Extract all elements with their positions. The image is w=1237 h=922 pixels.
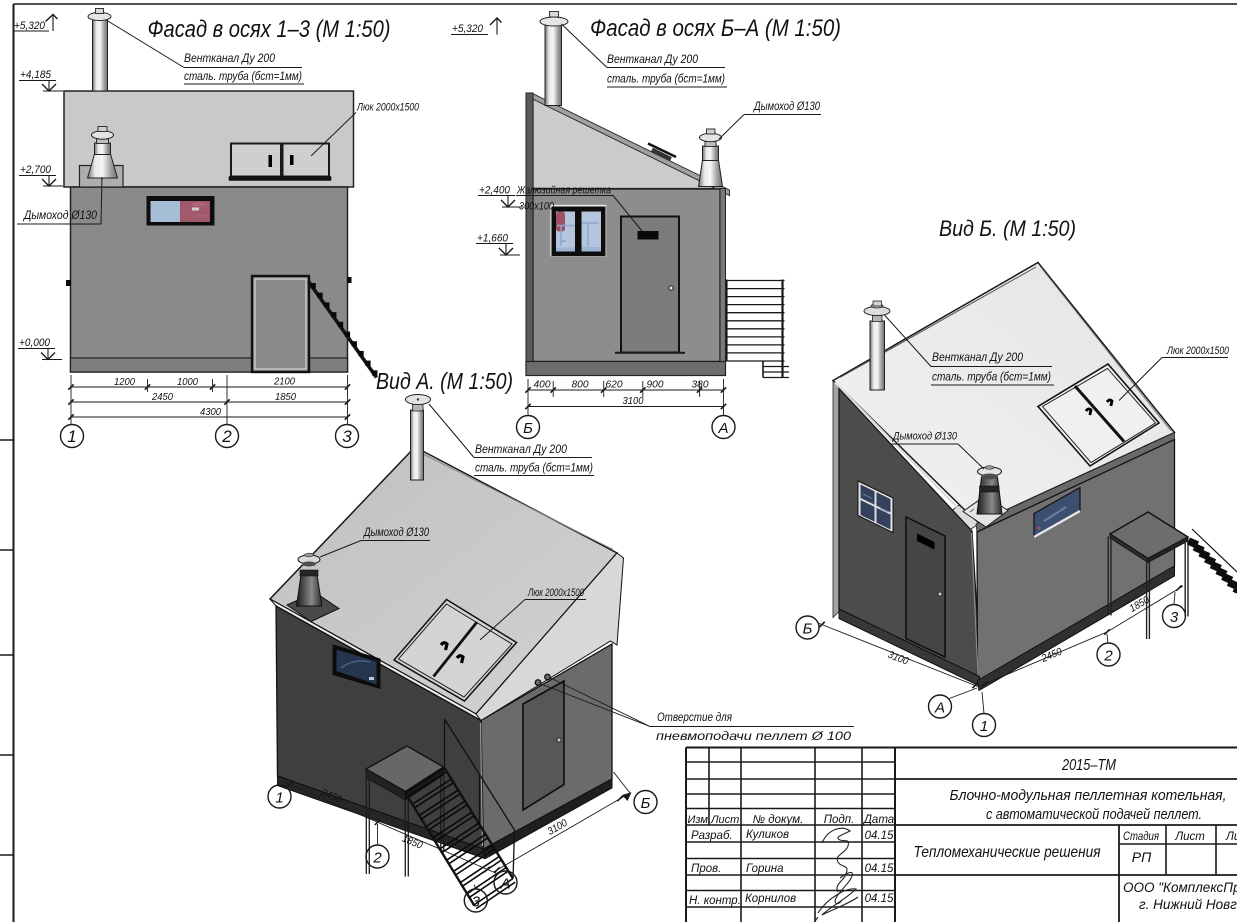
svg-text:Подп.: Подп. xyxy=(824,814,855,826)
svg-text:Лист: Лист xyxy=(710,814,739,826)
svg-text:Вентканал Ду 200: Вентканал Ду 200 xyxy=(475,444,568,456)
svg-text:Вид Б. (М 1:50): Вид Б. (М 1:50) xyxy=(939,216,1076,241)
svg-text:Изм.: Изм. xyxy=(688,814,711,826)
svg-text:1: 1 xyxy=(67,427,76,446)
svg-text:2100: 2100 xyxy=(273,376,295,388)
svg-text:4300: 4300 xyxy=(200,406,221,418)
svg-text:пневмоподачи пеллет Ø 100: пневмоподачи пеллет Ø 100 xyxy=(656,731,852,743)
svg-text:1200: 1200 xyxy=(114,376,135,388)
svg-text:РП: РП xyxy=(1132,849,1152,865)
svg-text:Люк 2000х1500: Люк 2000х1500 xyxy=(1166,345,1229,357)
svg-text:2: 2 xyxy=(1103,648,1113,665)
svg-text:04.15: 04.15 xyxy=(865,863,894,875)
svg-text:1850: 1850 xyxy=(275,391,296,403)
svg-text:04.15: 04.15 xyxy=(865,893,894,905)
svg-text:Дымоход Ø130: Дымоход Ø130 xyxy=(752,101,820,113)
svg-text:380: 380 xyxy=(692,379,709,391)
svg-text:3: 3 xyxy=(1170,609,1179,626)
svg-text:Люк 2000х1500: Люк 2000х1500 xyxy=(527,587,584,599)
svg-text:Фасад в осях 1–3 (М 1:50): Фасад в осях 1–3 (М 1:50) xyxy=(148,16,391,43)
svg-text:Жалюзийная решетка: Жалюзийная решетка xyxy=(516,185,611,197)
svg-text:Н. контр.: Н. контр. xyxy=(689,895,741,907)
svg-text:Люк 2000х1500: Люк 2000х1500 xyxy=(356,102,419,114)
svg-text:сталь. труба (бст=1мм): сталь. труба (бст=1мм) xyxy=(607,74,725,86)
svg-text:Лист: Лист xyxy=(1174,831,1205,843)
svg-text:сталь. труба (бст=1мм): сталь. труба (бст=1мм) xyxy=(932,372,1051,384)
svg-text:Дымоход Ø130: Дымоход Ø130 xyxy=(891,431,957,443)
svg-text:Горина: Горина xyxy=(746,863,784,875)
svg-text:2: 2 xyxy=(221,427,232,446)
svg-text:Пров.: Пров. xyxy=(691,863,721,875)
svg-text:300х100: 300х100 xyxy=(519,201,555,213)
svg-text:400: 400 xyxy=(534,379,551,391)
svg-text:ООО "КомплексПроект": ООО "КомплексПроект" xyxy=(1123,880,1237,895)
svg-text:1: 1 xyxy=(275,790,283,807)
svg-text:Б: Б xyxy=(641,795,651,812)
svg-text:900: 900 xyxy=(647,379,664,391)
svg-text:3100: 3100 xyxy=(623,395,644,407)
svg-text:Отверстие для: Отверстие для xyxy=(657,712,732,724)
svg-text:№ докум.: № докум. xyxy=(753,814,804,826)
svg-text:сталь. труба (бст=1мм): сталь. труба (бст=1мм) xyxy=(184,71,302,83)
svg-text:+5,320: +5,320 xyxy=(452,23,484,35)
svg-text:Куликов: Куликов xyxy=(746,829,789,841)
svg-text:1000: 1000 xyxy=(177,376,198,388)
svg-text:2: 2 xyxy=(372,850,382,867)
svg-text:Фасад в осях Б–А (М 1:50): Фасад в осях Б–А (М 1:50) xyxy=(590,15,841,42)
svg-text:800: 800 xyxy=(572,379,589,391)
svg-text:620: 620 xyxy=(606,379,623,391)
svg-text:Разраб.: Разраб. xyxy=(691,830,733,842)
svg-text:г. Нижний Новгород: г. Нижний Новгород xyxy=(1139,897,1237,912)
svg-text:Дымоход Ø130: Дымоход Ø130 xyxy=(362,527,429,539)
svg-text:Вентканал Ду 200: Вентканал Ду 200 xyxy=(607,54,699,66)
svg-text:04.15: 04.15 xyxy=(865,830,894,842)
svg-text:Стадия: Стадия xyxy=(1123,831,1159,843)
svg-text:2015–ТМ: 2015–ТМ xyxy=(1061,757,1116,774)
svg-text:Дымоход Ø130: Дымоход Ø130 xyxy=(22,210,97,222)
svg-text:Вентканал Ду 200: Вентканал Ду 200 xyxy=(932,352,1024,364)
svg-text:+2,700: +2,700 xyxy=(20,164,52,176)
svg-text:+4,185: +4,185 xyxy=(20,69,52,81)
svg-text:Корнилов: Корнилов xyxy=(745,893,796,905)
svg-text:1: 1 xyxy=(980,718,988,735)
svg-text:Б: Б xyxy=(523,420,533,437)
svg-text:А: А xyxy=(717,420,728,437)
svg-text:Дата: Дата xyxy=(862,814,894,826)
svg-text:с автоматической подачей пелле: с автоматической подачей пеллет. xyxy=(986,806,1202,823)
svg-text:+5,320: +5,320 xyxy=(14,20,46,32)
svg-text:+1,660: +1,660 xyxy=(477,233,509,245)
svg-text:3: 3 xyxy=(472,894,481,911)
svg-text:Листов: Листов xyxy=(1225,831,1237,843)
svg-text:сталь. труба (бст=1мм): сталь. труба (бст=1мм) xyxy=(475,463,593,475)
svg-text:3: 3 xyxy=(342,427,352,446)
svg-text:+0,000: +0,000 xyxy=(19,337,51,349)
svg-text:А: А xyxy=(499,876,510,893)
svg-text:Блочно-модульная пеллетная кот: Блочно-модульная пеллетная котельная, xyxy=(950,787,1227,804)
svg-text:+2,400: +2,400 xyxy=(479,185,511,197)
svg-text:2450: 2450 xyxy=(151,391,173,403)
svg-text:Б: Б xyxy=(803,621,813,638)
svg-text:Вид А. (М 1:50): Вид А. (М 1:50) xyxy=(376,368,513,394)
svg-text:Тепломеханические решения: Тепломеханические решения xyxy=(914,844,1101,861)
svg-text:А: А xyxy=(934,700,945,717)
svg-text:Вентканал Ду 200: Вентканал Ду 200 xyxy=(184,53,276,65)
